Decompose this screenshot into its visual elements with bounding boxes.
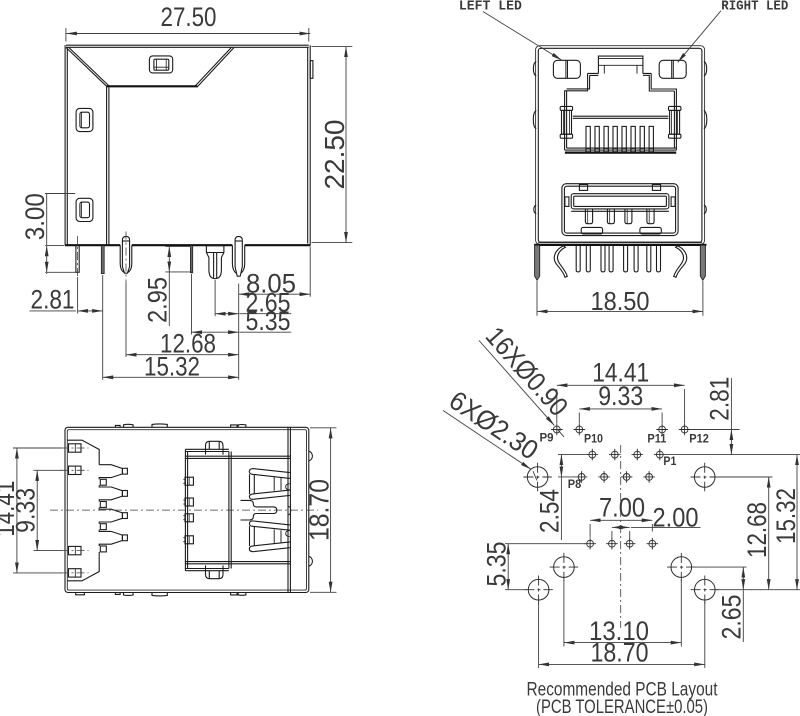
svg-text:22.50: 22.50 bbox=[319, 120, 350, 190]
svg-text:9.33: 9.33 bbox=[598, 381, 643, 411]
svg-text:2.95: 2.95 bbox=[143, 277, 173, 323]
svg-text:5.35: 5.35 bbox=[482, 542, 512, 587]
svg-text:P11: P11 bbox=[647, 432, 666, 446]
svg-text:2.81: 2.81 bbox=[31, 285, 75, 315]
svg-text:12.68: 12.68 bbox=[742, 502, 772, 558]
svg-text:LEFT LED: LEFT LED bbox=[459, 0, 522, 15]
svg-text:15.32: 15.32 bbox=[144, 351, 200, 381]
svg-text:18.50: 18.50 bbox=[591, 286, 650, 316]
svg-text:RIGHT LED: RIGHT LED bbox=[721, 0, 788, 15]
svg-text:5.35: 5.35 bbox=[246, 306, 291, 336]
svg-text:15.32: 15.32 bbox=[771, 488, 800, 544]
svg-text:2.65: 2.65 bbox=[717, 595, 747, 640]
svg-text:2.00: 2.00 bbox=[653, 503, 699, 533]
svg-text:2.54: 2.54 bbox=[535, 489, 565, 533]
svg-text:27.50: 27.50 bbox=[161, 2, 217, 32]
svg-text:18.70: 18.70 bbox=[304, 479, 335, 541]
svg-text:P12: P12 bbox=[689, 432, 709, 446]
svg-text:P1: P1 bbox=[663, 454, 676, 468]
svg-text:P8: P8 bbox=[568, 477, 582, 491]
svg-text:P10: P10 bbox=[584, 432, 603, 446]
svg-text:9.33: 9.33 bbox=[11, 488, 41, 533]
svg-text:3.00: 3.00 bbox=[20, 193, 50, 240]
svg-text:7.00: 7.00 bbox=[599, 493, 645, 523]
svg-text:2.81: 2.81 bbox=[705, 377, 735, 421]
svg-text:(PCB TOLERANCE±0.05): (PCB TOLERANCE±0.05) bbox=[536, 697, 708, 716]
svg-text:18.70: 18.70 bbox=[591, 638, 649, 668]
